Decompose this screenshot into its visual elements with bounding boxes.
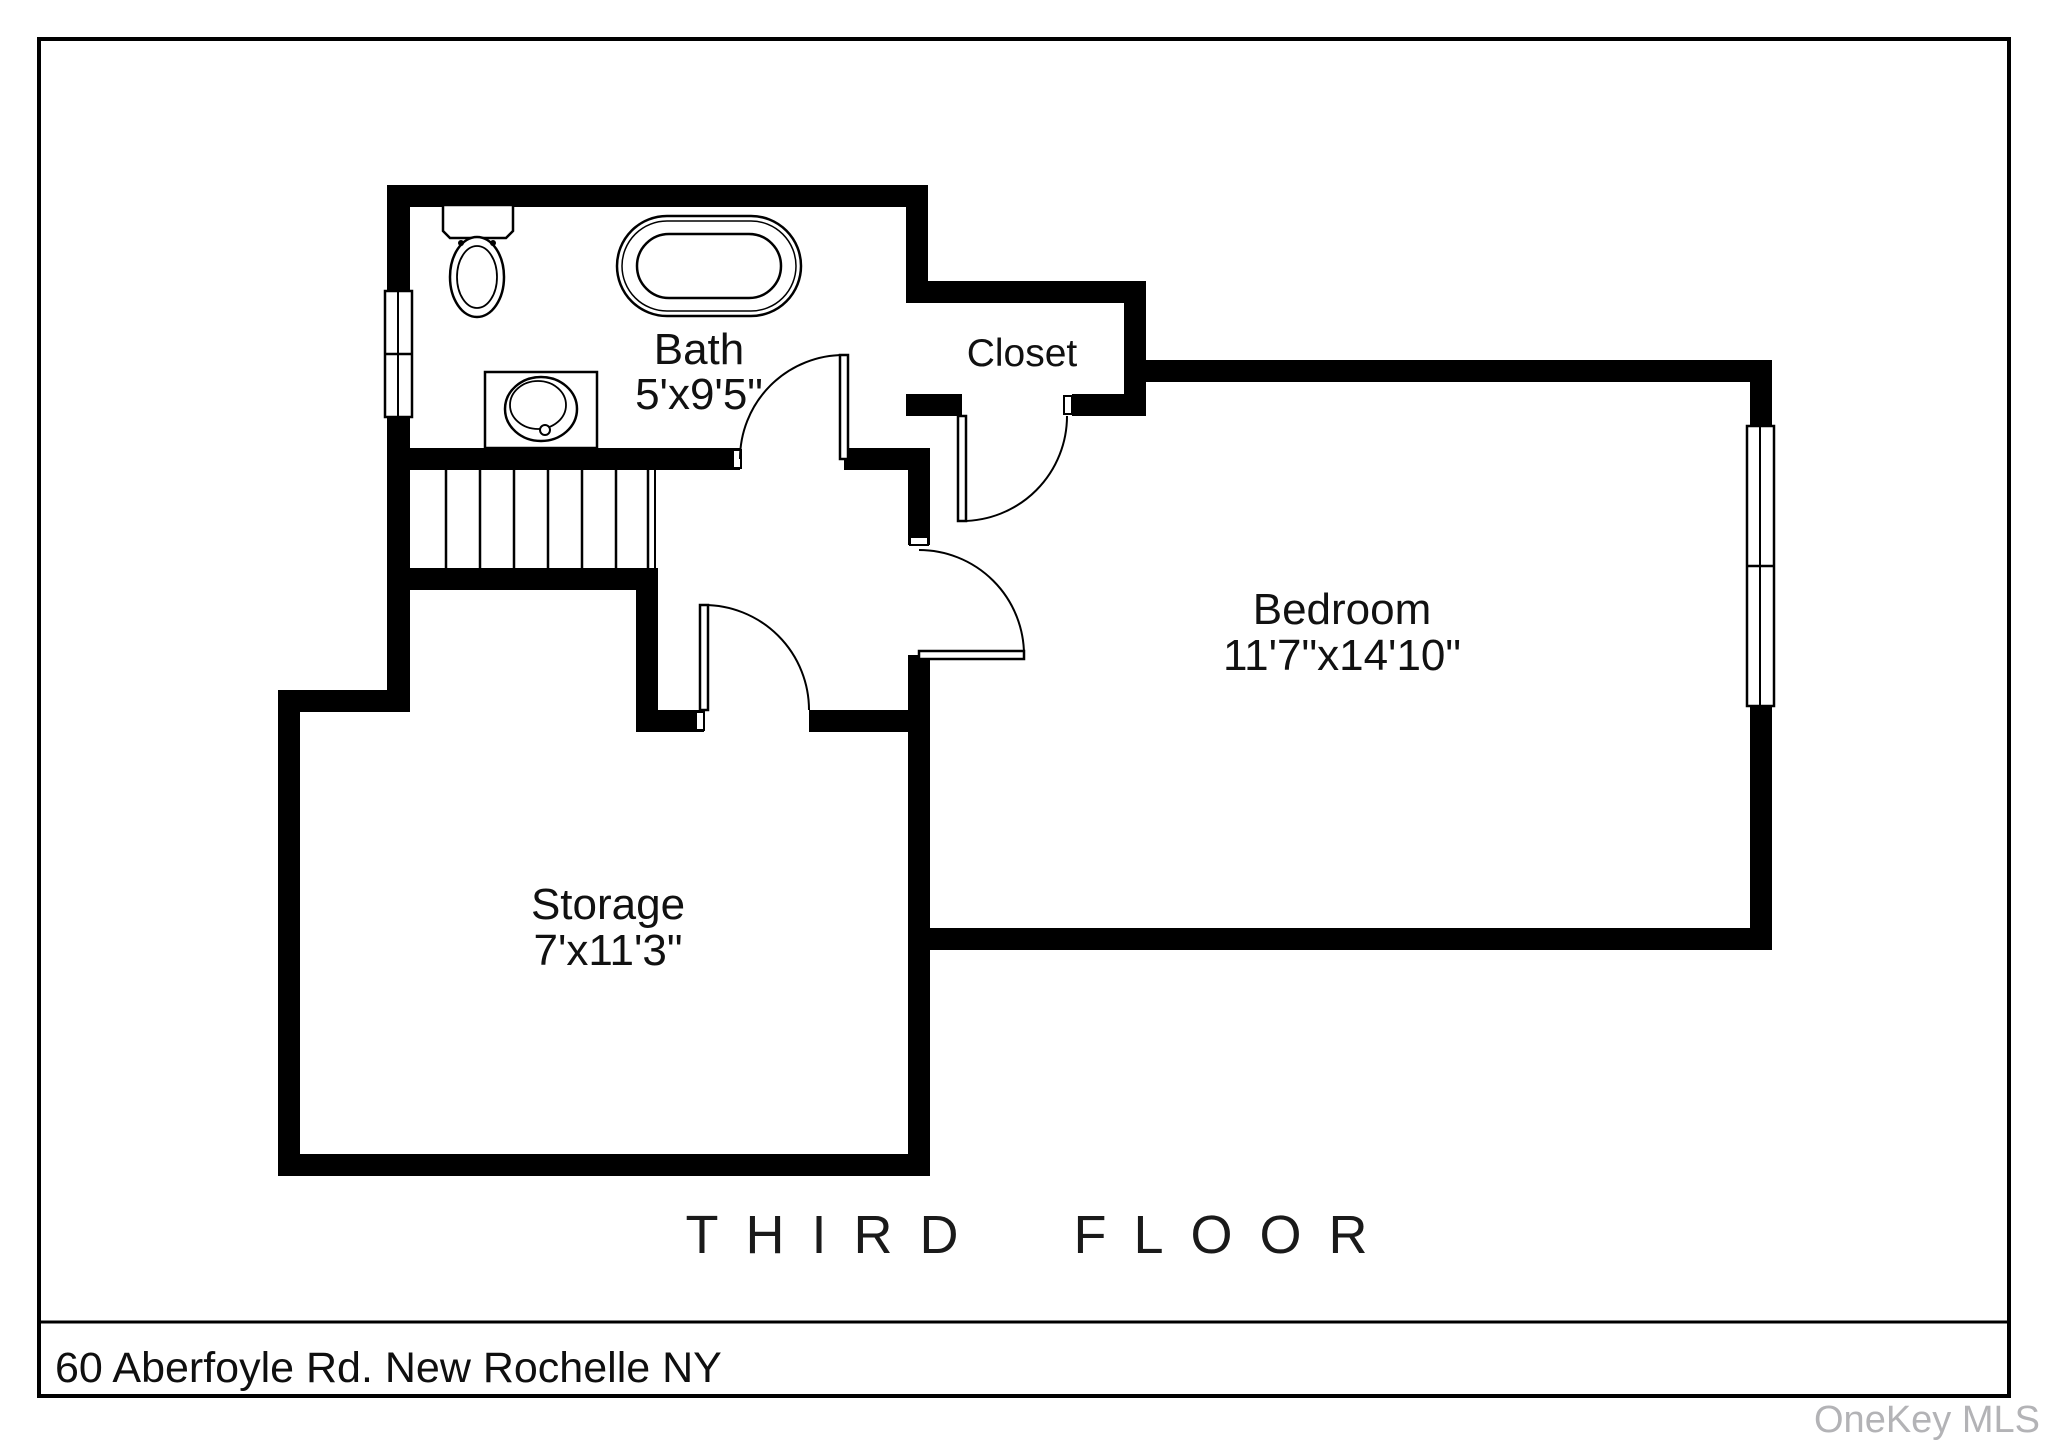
storage-bottom-wall xyxy=(278,1154,930,1176)
bedroom-left-wall-upper xyxy=(908,448,930,545)
bath-window-icon xyxy=(385,291,412,417)
sink-icon xyxy=(485,372,597,448)
bedroom-dimensions: 11'7"x14'10" xyxy=(1223,631,1461,680)
bath-top-wall xyxy=(387,185,928,207)
bedroom-right-wall-lower xyxy=(1750,706,1772,950)
closet-top-wall xyxy=(906,281,1146,303)
bath-dimensions: 5'x9'5" xyxy=(635,370,763,419)
closet-bottom-wall-right xyxy=(1072,394,1146,416)
closet-bottom-wall-left xyxy=(906,394,962,416)
storage-label: Storage xyxy=(531,880,685,929)
bathtub-icon xyxy=(617,216,801,316)
bedroom-window-icon xyxy=(1747,426,1774,706)
watermark: OneKey MLS xyxy=(1814,1399,2040,1441)
storage-left-wall xyxy=(278,690,300,1176)
bedroom-label: Bedroom xyxy=(1253,585,1432,634)
hallway-left-stub-wall xyxy=(636,590,658,732)
stairs-bottom-wall xyxy=(387,568,658,590)
bath-label: Bath xyxy=(654,325,745,374)
bedroom-top-wall xyxy=(1124,360,1772,382)
floor-plan-page: Bath 5'x9'5" Closet Bedroom 11'7"x14'10"… xyxy=(0,0,2048,1447)
floor-plan-drawing: Bath 5'x9'5" Closet Bedroom 11'7"x14'10"… xyxy=(0,0,2048,1447)
closet-label: Closet xyxy=(967,332,1078,375)
bath-left-wall-upper xyxy=(387,185,410,291)
storage-dimensions: 7'x11'3" xyxy=(533,926,682,975)
hallway-bottom-wall-right xyxy=(809,710,930,732)
bath-bottom-wall-left xyxy=(387,448,740,470)
bedroom-right-wall-upper xyxy=(1750,360,1772,426)
storage-right-wall xyxy=(908,732,930,1176)
bedroom-bottom-wall xyxy=(908,928,1772,950)
floor-title: THIRD FLOOR xyxy=(685,1205,1394,1265)
address-text: 60 Aberfoyle Rd. New Rochelle NY xyxy=(55,1344,722,1392)
